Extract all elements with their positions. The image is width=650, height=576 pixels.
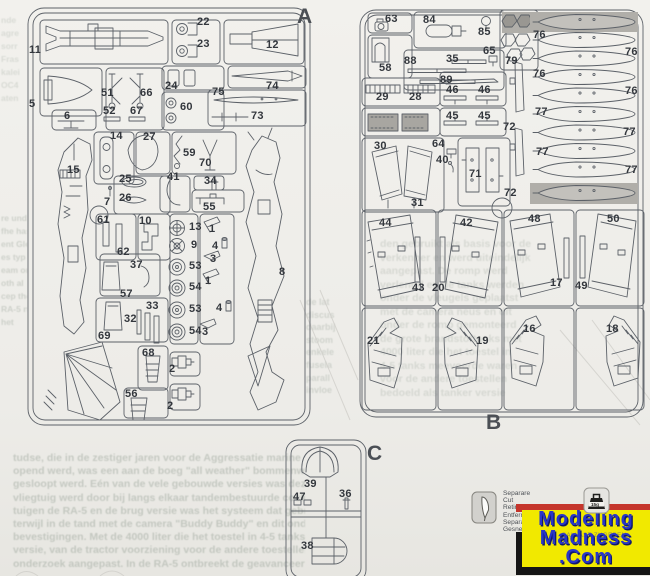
part-label-30: 30 — [374, 141, 387, 152]
part-label-23: 23 — [197, 39, 210, 50]
part-label-50: 50 — [607, 214, 620, 225]
part-label-88: 88 — [404, 56, 417, 67]
part-label-38: 38 — [301, 541, 314, 552]
part-label-13: 13 — [189, 222, 202, 233]
weight-label: 15g — [591, 502, 599, 507]
part-label-7: 7 — [104, 197, 110, 208]
cut-instruction-line: Separare — [503, 490, 533, 497]
part-label-3: 3 — [210, 254, 216, 265]
part-label-39: 39 — [304, 479, 317, 490]
part-label-34: 34 — [204, 176, 217, 187]
part-label-16: 16 — [523, 324, 536, 335]
part-label-55: 55 — [203, 202, 216, 213]
part-label-21: 21 — [367, 336, 380, 347]
part-label-20: 20 — [432, 283, 445, 294]
part-label-70: 70 — [199, 158, 212, 169]
part-label-31: 31 — [411, 198, 424, 209]
part-label-68: 68 — [142, 348, 155, 359]
part-label-66: 66 — [140, 88, 153, 99]
part-label-61: 61 — [97, 215, 110, 226]
part-label-26: 26 — [119, 193, 132, 204]
part-label-53: 53 — [189, 304, 202, 315]
part-label-27: 27 — [143, 132, 156, 143]
part-label-41: 41 — [167, 172, 180, 183]
part-label-79: 79 — [505, 56, 518, 67]
part-label-67: 67 — [130, 106, 143, 117]
part-label-2: 2 — [167, 401, 173, 412]
part-label-9: 9 — [191, 240, 197, 251]
part-label-76: 76 — [533, 30, 546, 41]
part-label-57: 57 — [120, 289, 133, 300]
part-label-17: 17 — [550, 278, 563, 289]
part-label-76: 76 — [625, 47, 638, 58]
part-label-54: 54 — [189, 326, 202, 337]
part-label-63: 63 — [385, 14, 398, 25]
part-label-33: 33 — [146, 301, 159, 312]
part-label-12: 12 — [266, 40, 279, 51]
part-label-71: 71 — [469, 169, 482, 180]
part-label-22: 22 — [197, 17, 210, 28]
part-label-40: 40 — [436, 155, 449, 166]
part-label-77: 77 — [536, 147, 549, 158]
part-label-74: 74 — [266, 81, 279, 92]
part-label-72: 72 — [504, 188, 517, 199]
part-label-52: 52 — [103, 106, 116, 117]
part-label-76: 76 — [533, 69, 546, 80]
sprue-letter-B: B — [486, 412, 501, 433]
part-label-28: 28 — [409, 92, 422, 103]
logo-line3: .Com — [522, 548, 650, 567]
part-label-46: 46 — [478, 85, 491, 96]
part-label-3: 3 — [202, 327, 208, 338]
part-label-49: 49 — [575, 281, 588, 292]
sprue-letter-C: C — [367, 443, 382, 464]
part-label-24: 24 — [165, 81, 178, 92]
part-label-6: 6 — [64, 111, 70, 122]
part-label-2: 2 — [169, 364, 175, 375]
part-label-75: 75 — [212, 87, 225, 98]
part-label-54: 54 — [189, 282, 202, 293]
part-label-77: 77 — [625, 165, 638, 176]
weight-icon: 15g — [583, 487, 610, 519]
part-label-84: 84 — [423, 15, 436, 26]
part-label-8: 8 — [279, 267, 285, 278]
part-label-85: 85 — [478, 27, 491, 38]
part-label-29: 29 — [376, 92, 389, 103]
part-label-62: 62 — [117, 247, 130, 258]
part-label-60: 60 — [180, 102, 193, 113]
part-label-73: 73 — [251, 111, 264, 122]
part-label-47: 47 — [293, 492, 306, 503]
part-label-43: 43 — [412, 283, 425, 294]
part-label-10: 10 — [139, 216, 152, 227]
part-label-45: 45 — [446, 111, 459, 122]
part-label-14: 14 — [110, 131, 123, 142]
part-label-72: 72 — [503, 122, 516, 133]
part-label-36: 36 — [339, 489, 352, 500]
part-label-45: 45 — [478, 111, 491, 122]
part-label-15: 15 — [67, 165, 80, 176]
part-label-59: 59 — [183, 148, 196, 159]
part-label-37: 37 — [130, 260, 143, 271]
part-label-58: 58 — [379, 63, 392, 74]
part-label-51: 51 — [101, 88, 114, 99]
part-label-76: 76 — [625, 86, 638, 97]
part-label-32: 32 — [124, 314, 137, 325]
part-label-48: 48 — [528, 214, 541, 225]
part-label-19: 19 — [476, 336, 489, 347]
part-label-4: 4 — [216, 303, 222, 314]
part-label-35: 35 — [446, 54, 459, 65]
part-label-11: 11 — [29, 45, 41, 56]
part-label-64: 64 — [432, 139, 445, 150]
part-label-42: 42 — [460, 218, 473, 229]
part-label-4: 4 — [212, 241, 218, 252]
sprue-letter-A: A — [297, 6, 312, 27]
part-label-77: 77 — [535, 107, 548, 118]
part-label-65: 65 — [483, 46, 496, 57]
part-label-46: 46 — [446, 85, 459, 96]
part-label-1: 1 — [209, 224, 215, 235]
part-label-25: 25 — [119, 174, 132, 185]
part-label-53: 53 — [189, 261, 202, 272]
part-label-1: 1 — [205, 276, 211, 287]
part-label-69: 69 — [98, 331, 111, 342]
part-label-77: 77 — [623, 127, 636, 138]
part-label-18: 18 — [606, 324, 619, 335]
part-label-56: 56 — [125, 389, 138, 400]
part-label-44: 44 — [379, 218, 392, 229]
part-label-5: 5 — [29, 99, 35, 110]
knife-icon — [471, 491, 497, 529]
part-labels-layer: A112223125516652676246074757314271525267… — [0, 0, 650, 576]
